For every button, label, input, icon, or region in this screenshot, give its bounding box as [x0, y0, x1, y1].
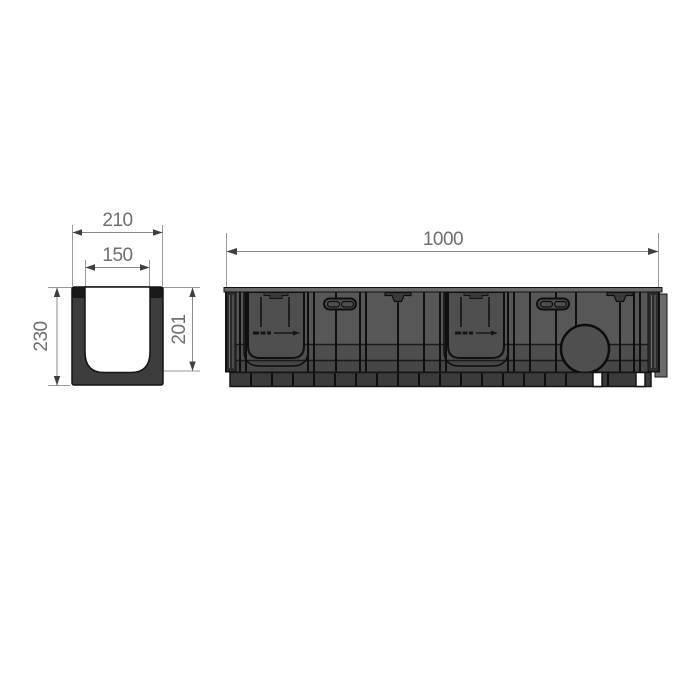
drawing-canvas: 210 150 230 201 1000	[0, 0, 700, 700]
arrow-down-icon	[54, 376, 60, 386]
dimension-inner-width-150: 150	[86, 245, 150, 286]
arrow-up-icon	[189, 288, 195, 298]
dim-label-length: 1000	[423, 229, 463, 250]
marking-text-block	[253, 332, 259, 335]
feet-strip	[230, 373, 651, 387]
end-cap-body	[227, 292, 237, 372]
section-inner-cavity	[85, 287, 150, 373]
marking-text-block	[455, 332, 461, 335]
arrow-left-icon	[73, 229, 83, 235]
foot-notch-cutout	[593, 373, 602, 387]
marking-text-block	[261, 332, 266, 335]
left-end-cap	[227, 292, 237, 372]
technical-drawing: 210 150 230 201 1000	[0, 0, 700, 700]
marking-text-block	[267, 332, 271, 335]
recessed-panel-right	[444, 292, 508, 366]
marking-text-block	[469, 332, 473, 335]
section-right-edge-rail	[150, 288, 163, 299]
dim-label-inner-depth: 201	[169, 314, 190, 344]
recessed-panel-left	[244, 292, 308, 366]
top-edge-rail	[224, 288, 662, 293]
panel-face	[448, 292, 504, 358]
marking-text-block	[463, 332, 468, 335]
dimension-length-1000: 1000	[227, 229, 659, 287]
arrow-down-icon	[189, 362, 195, 372]
end-cap-body	[648, 292, 659, 372]
locking-slot-left	[324, 299, 356, 310]
cross-section-view	[72, 287, 163, 385]
side-view	[224, 288, 667, 387]
section-left-edge-rail	[73, 288, 86, 299]
dim-label-inner-width: 150	[102, 245, 132, 266]
arrow-right-icon	[140, 264, 150, 270]
arrow-right-icon	[153, 229, 163, 235]
arrow-left-icon	[86, 264, 96, 270]
arrow-left-icon	[227, 248, 238, 255]
foot-notch-cutout	[636, 373, 645, 387]
dim-label-outer-height: 230	[31, 321, 52, 351]
panel-face	[248, 292, 304, 358]
arrow-up-icon	[54, 288, 60, 298]
dim-label-outer-width: 210	[102, 210, 132, 231]
locking-slot-right	[537, 299, 569, 310]
pipe-outlet-knockout	[561, 325, 609, 373]
arrow-right-icon	[648, 248, 659, 255]
right-end-cap	[648, 292, 659, 372]
